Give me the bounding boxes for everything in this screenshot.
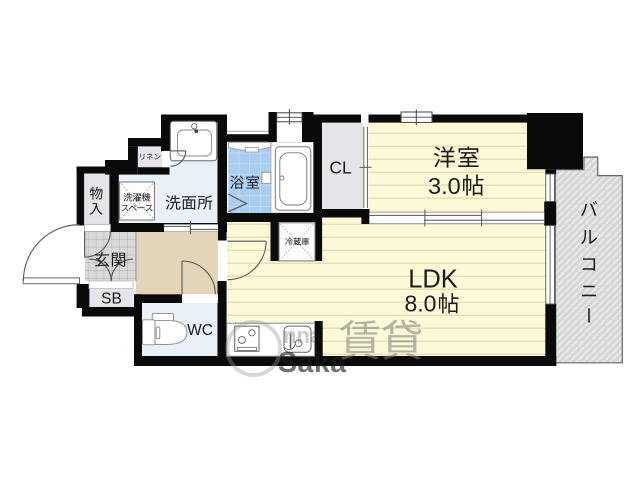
svg-text:8.0: 8.0 (405, 291, 437, 317)
svg-text:Saka: Saka (278, 347, 347, 379)
svg-text:LDK: LDK (408, 266, 458, 294)
svg-text:nna: nna (283, 323, 323, 348)
svg-text:SB: SB (101, 291, 122, 308)
svg-text:CL: CL (329, 157, 352, 177)
svg-text:3.0: 3.0 (428, 173, 461, 199)
svg-text:WC: WC (187, 322, 213, 339)
